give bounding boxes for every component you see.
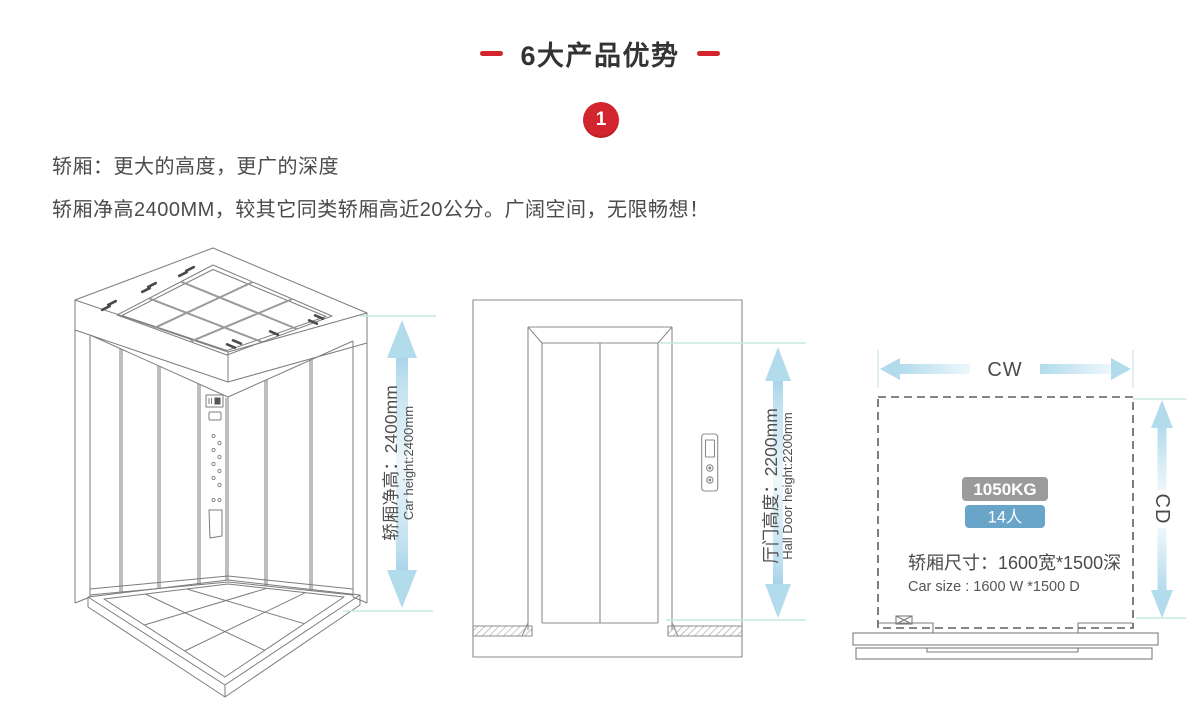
title-dash-right (697, 51, 720, 56)
car-size-label-cn: 轿厢尺寸：1600宽*1500深 (908, 553, 1121, 573)
car-width-dimension: CW (878, 350, 1133, 388)
car-depth-label: CD (1151, 494, 1173, 525)
car-height-dimension: 轿厢净高：2400mm Car height:2400mm (343, 316, 436, 611)
car-height-label-en: Car height:2400mm (401, 406, 416, 520)
hall-call-panel (702, 434, 718, 491)
door-height-label-cn: 厅门高度：2200mm (761, 408, 781, 564)
car-3d-diagram: 轿厢净高：2400mm Car height:2400mm (50, 245, 440, 709)
page: 6大产品优势 1 轿厢：更大的高度，更广的深度 轿厢净高2400MM，较其它同类… (0, 0, 1200, 709)
load-badge-text: 1050KG (973, 480, 1036, 499)
door-height-label-en: Hall Door height:2200mm (780, 412, 795, 559)
advantage-number-badge: 1 (583, 102, 619, 138)
hall-door-diagram: 厅门高度：2200mm Hall Door height:2200mm (460, 290, 820, 670)
door-line-art (473, 300, 742, 657)
car-depth-dimension: CD (1133, 399, 1186, 618)
door-height-dimension: 厅门高度：2200mm Hall Door height:2200mm (660, 343, 806, 620)
intro-line-2: 轿厢净高2400MM，较其它同类轿厢高近20公分。广阔空间，无限畅想！ (52, 193, 710, 222)
section-title-row: 6大产品优势 (0, 36, 1200, 70)
car-width-label: CW (987, 359, 1022, 381)
capacity-badges: 1050KG 14人 (962, 477, 1048, 528)
car-line-art (75, 248, 367, 697)
car-operating-panel (206, 395, 223, 538)
title-dash-left (480, 51, 503, 56)
plan-view-diagram: CW CD 1050KG 14人 轿厢尺寸：1600宽*1500深 Car si… (848, 342, 1188, 662)
intro-line-1: 轿厢：更大的高度，更广的深度 (52, 150, 339, 179)
car-height-label-cn: 轿厢净高：2400mm (381, 385, 401, 541)
page-title: 6大产品优势 (520, 34, 679, 73)
persons-badge-text: 14人 (988, 508, 1023, 527)
plan-door-sills (853, 616, 1158, 659)
car-size-label-en: Car size : 1600 W *1500 D (908, 579, 1080, 595)
